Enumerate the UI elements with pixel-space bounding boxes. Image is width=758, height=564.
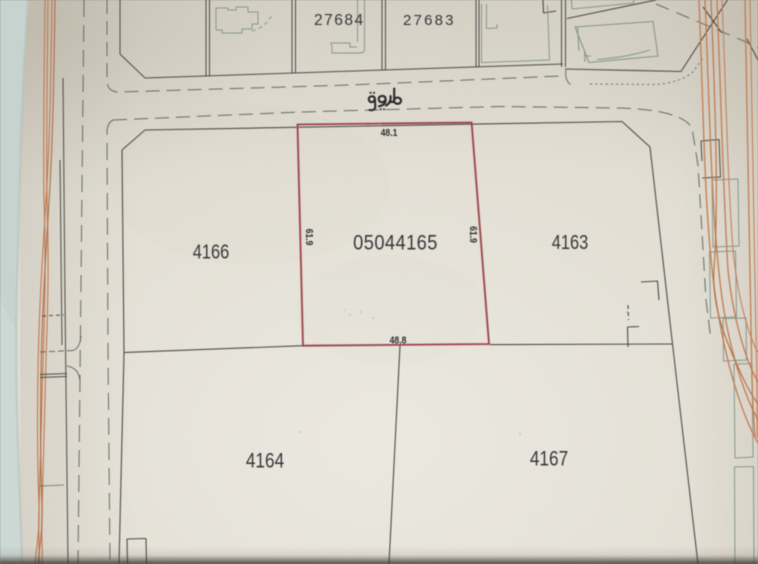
svg-text:4163: 4163	[552, 230, 588, 253]
svg-text:27684: 27684	[314, 12, 365, 29]
svg-text:4164: 4164	[246, 450, 285, 473]
svg-text:05044165: 05044165	[353, 231, 438, 254]
svg-text:4166: 4166	[193, 240, 229, 263]
svg-text:27683: 27683	[403, 12, 456, 29]
svg-text:4167: 4167	[530, 448, 568, 471]
svg-text:48.1: 48.1	[381, 127, 398, 139]
svg-text:61.9: 61.9	[303, 229, 315, 246]
svg-text:61.9: 61.9	[467, 226, 479, 243]
svg-text:48.8: 48.8	[390, 335, 407, 347]
